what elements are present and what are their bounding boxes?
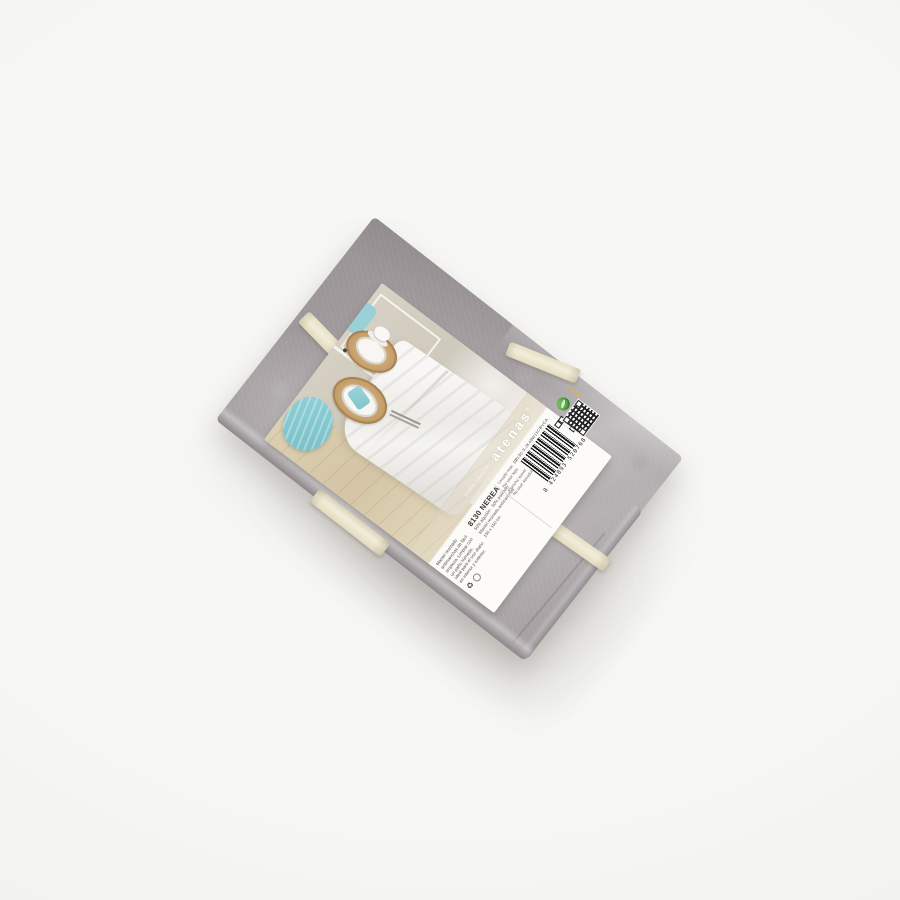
recycle-icon: ♻: [465, 581, 476, 592]
product-photo-scene: home textile atenas® Mantel resinado ant…: [0, 0, 900, 900]
green-point-icon: [471, 572, 482, 583]
